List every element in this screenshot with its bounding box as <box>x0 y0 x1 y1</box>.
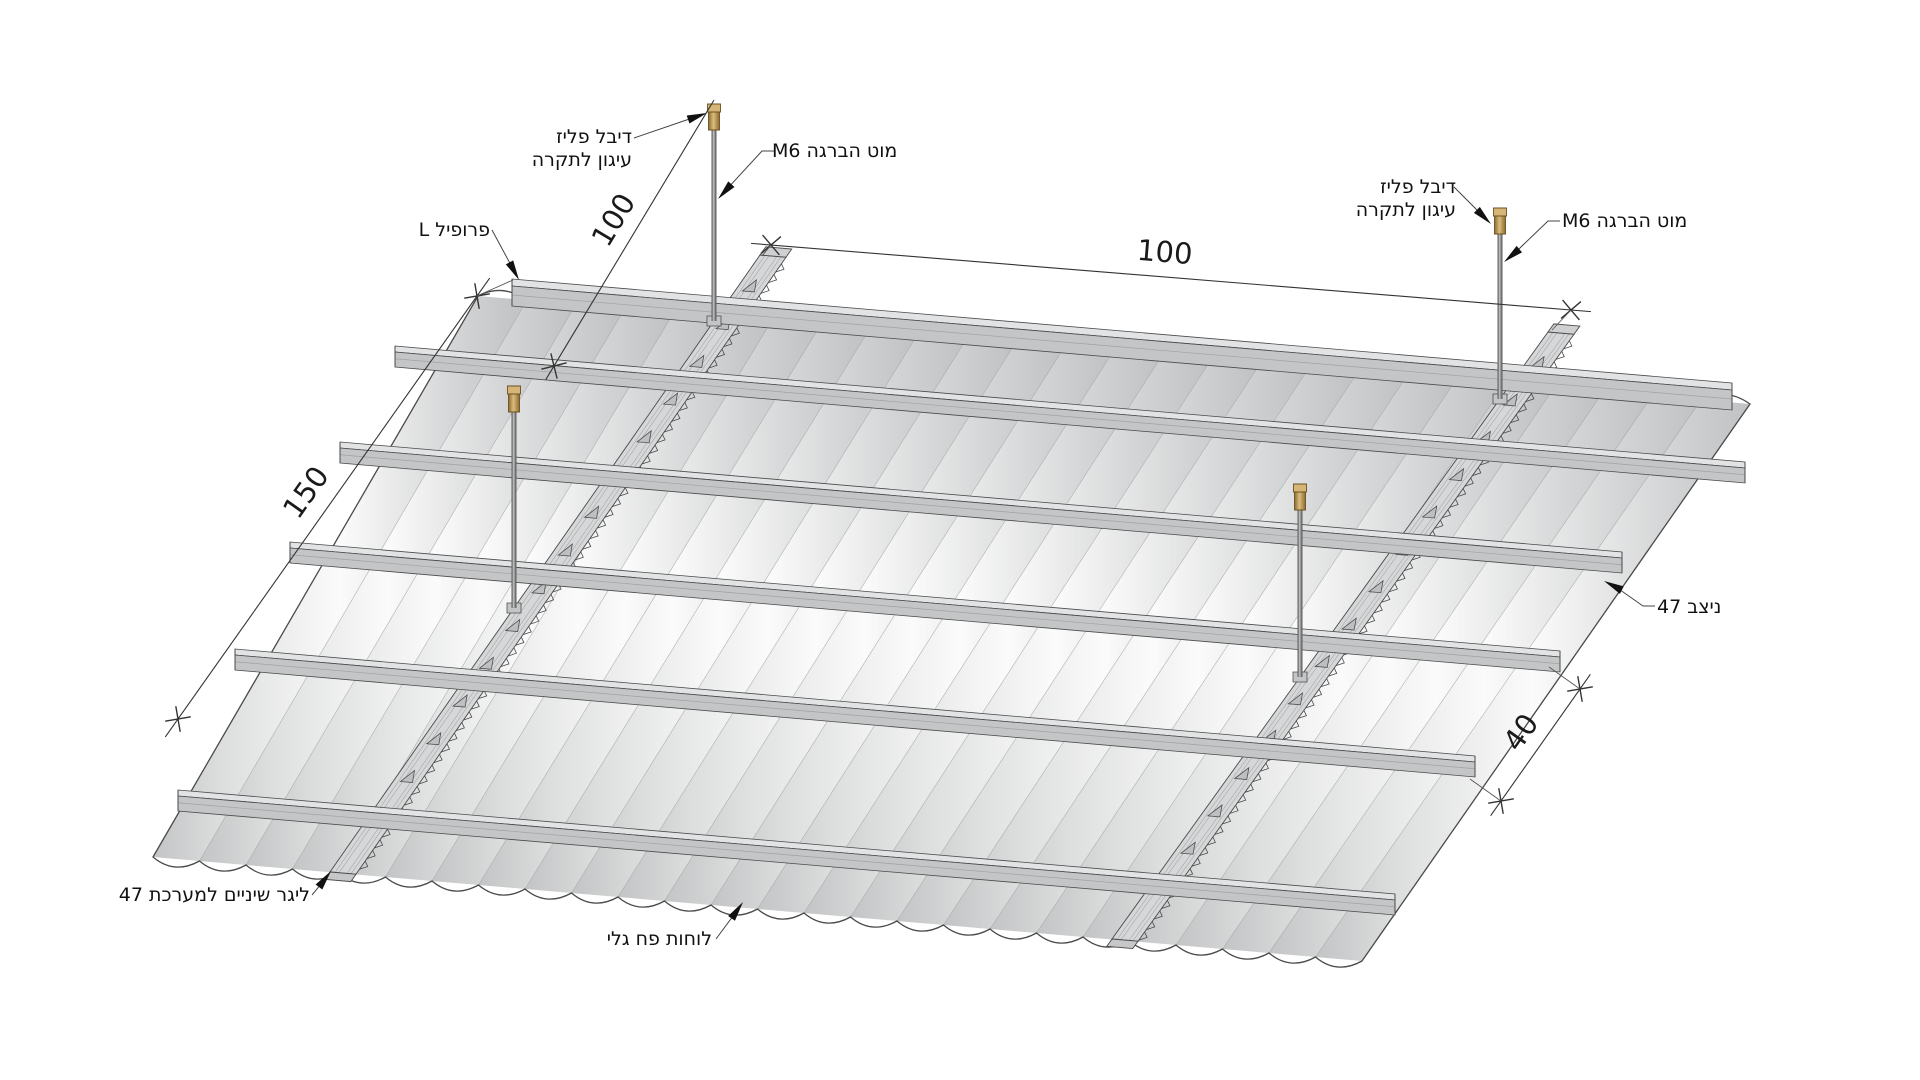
leader-stud-47 <box>1616 587 1655 606</box>
label-line: עיגון לתקרה <box>457 149 632 172</box>
label-line: דיבל פליז <box>457 126 632 149</box>
label-line: עיגון לתקרה <box>1281 199 1456 222</box>
label-ceiling-anchor-left: דיבל פליז עיגון לתקרה <box>457 126 632 172</box>
label-ceiling-anchor-right: דיבל פליז עיגון לתקרה <box>1281 176 1456 222</box>
label-threaded-rod-right: מוט הברגה M6 <box>1562 210 1687 233</box>
dimension-100-top-text: 100 <box>1136 233 1194 271</box>
label-stud-47: ניצב 47 <box>1657 596 1721 619</box>
label-l-profile: פרופיל L <box>360 219 490 242</box>
dimension-150-text: 150 <box>276 460 336 525</box>
leader-anchor-left <box>634 118 694 138</box>
label-corrugated-sheets: לוחות פח גלי <box>540 928 712 951</box>
technical-drawing: 150 100 100 40 דיבל פליז עיגון לתקרה מוט… <box>0 0 1920 1080</box>
leader-rod-left <box>727 151 774 189</box>
drawing-canvas: 150 100 100 40 <box>0 0 1920 1080</box>
label-line: דיבל פליז <box>1281 176 1456 199</box>
leader-l-profile <box>492 230 512 268</box>
label-threaded-rod-left: מוט הברגה M6 <box>772 140 897 163</box>
dimension-100-diagonal-text: 100 <box>585 187 643 252</box>
leader-rod-right <box>1515 221 1560 253</box>
label-toothed-ligger: ליגר שיניים למערכת 47 <box>90 884 310 907</box>
